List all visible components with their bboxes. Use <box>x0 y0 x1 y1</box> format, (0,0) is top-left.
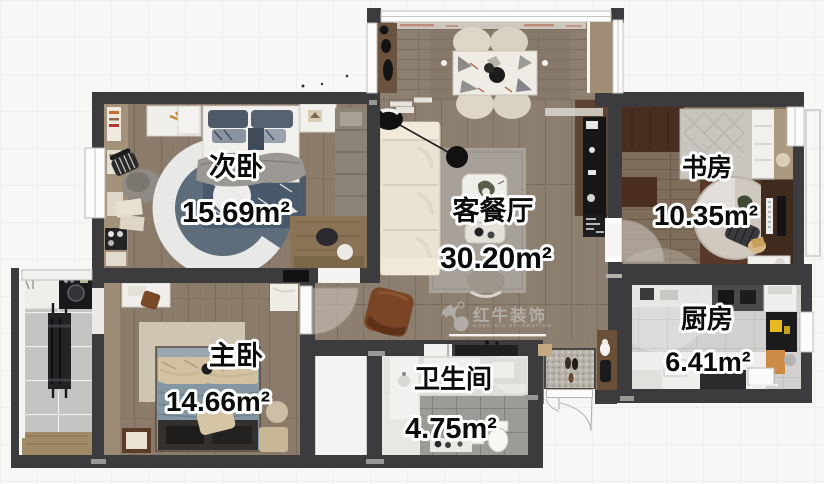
svg-text:客餐厅: 客餐厅 <box>453 195 534 226</box>
svg-text:次卧: 次卧 <box>209 152 263 182</box>
svg-text:卫生间: 卫生间 <box>414 364 492 394</box>
svg-text:4.75m²: 4.75m² <box>405 413 497 445</box>
svg-text:红牛装饰: 红牛装饰 <box>473 305 547 325</box>
svg-text:6.41m²: 6.41m² <box>665 347 751 377</box>
svg-text:HONG NIU DECORATION: HONG NIU DECORATION <box>473 323 552 328</box>
svg-text:厨房: 厨房 <box>681 304 733 334</box>
svg-text:14.66m²: 14.66m² <box>166 386 270 417</box>
svg-text:书房: 书房 <box>682 153 732 182</box>
svg-text:15.69m²: 15.69m² <box>182 197 290 229</box>
svg-text:30.20m²: 30.20m² <box>440 242 552 275</box>
svg-text:主卧: 主卧 <box>209 341 263 371</box>
svg-text:10.35m²: 10.35m² <box>654 200 758 231</box>
